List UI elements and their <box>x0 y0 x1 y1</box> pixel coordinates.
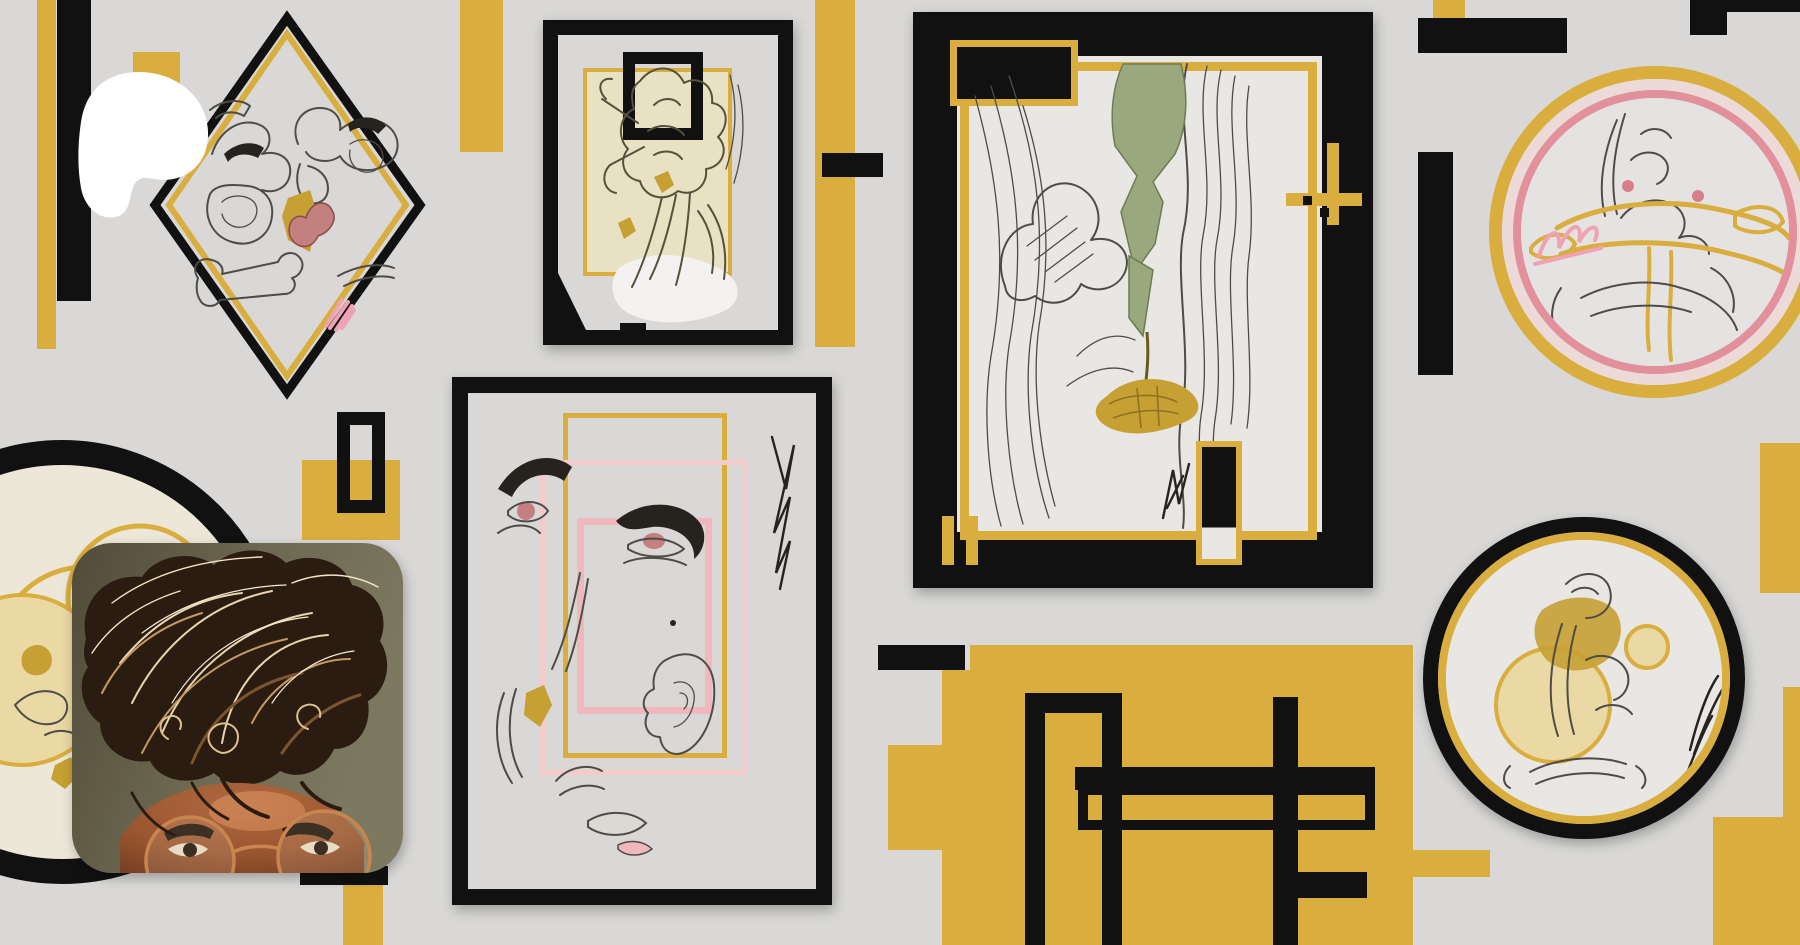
figure-sketch <box>558 35 778 330</box>
br-edge-yellow-2 <box>1713 817 1800 945</box>
grid-vbar <box>1273 697 1298 945</box>
top-yellow-block <box>460 0 503 152</box>
face-sketch <box>468 393 816 889</box>
frameC-strip1 <box>942 516 954 565</box>
tr-black-bar <box>1418 18 1567 53</box>
frameC-cross-sq2 <box>1320 208 1329 217</box>
avatar-photo <box>72 543 403 873</box>
botanical-sketch <box>957 56 1322 532</box>
grid-box-outline <box>1078 785 1375 830</box>
bottom-right-circle-sketch <box>1446 540 1722 816</box>
mid-black-bar <box>822 153 883 177</box>
frameC-cross-h <box>1286 193 1362 206</box>
patreon-logo-icon[interactable] <box>77 70 212 220</box>
frameC-strip2 <box>966 516 978 565</box>
bottom-yellow-step2 <box>888 745 942 850</box>
creator-avatar[interactable] <box>72 543 403 873</box>
framed-sketch-top <box>543 20 793 345</box>
framed-sketch-center <box>913 12 1373 588</box>
bottom-yellow-step1 <box>942 670 970 945</box>
left-yellow-bar <box>37 0 56 349</box>
framed-sketch-left <box>452 377 832 905</box>
br-edge-yellow-1 <box>1783 687 1800 817</box>
creator-page-header <box>0 0 1800 945</box>
corner-leg <box>1690 0 1727 35</box>
frameC-cross-sq1 <box>1303 196 1312 205</box>
bottom-yellow-notch <box>1413 850 1490 877</box>
avatar-yellow-bar <box>343 885 383 945</box>
right-yellow-rect <box>1760 443 1800 593</box>
top-right-circle-sketch <box>1521 98 1789 366</box>
grid-stub <box>1298 872 1367 898</box>
tr-black-vbar <box>1418 152 1453 375</box>
black-yellow-bar <box>1196 441 1242 565</box>
tr-yellow-tab <box>1433 0 1465 18</box>
bottom-black-bar <box>878 645 965 670</box>
hollow-rect <box>337 412 385 513</box>
